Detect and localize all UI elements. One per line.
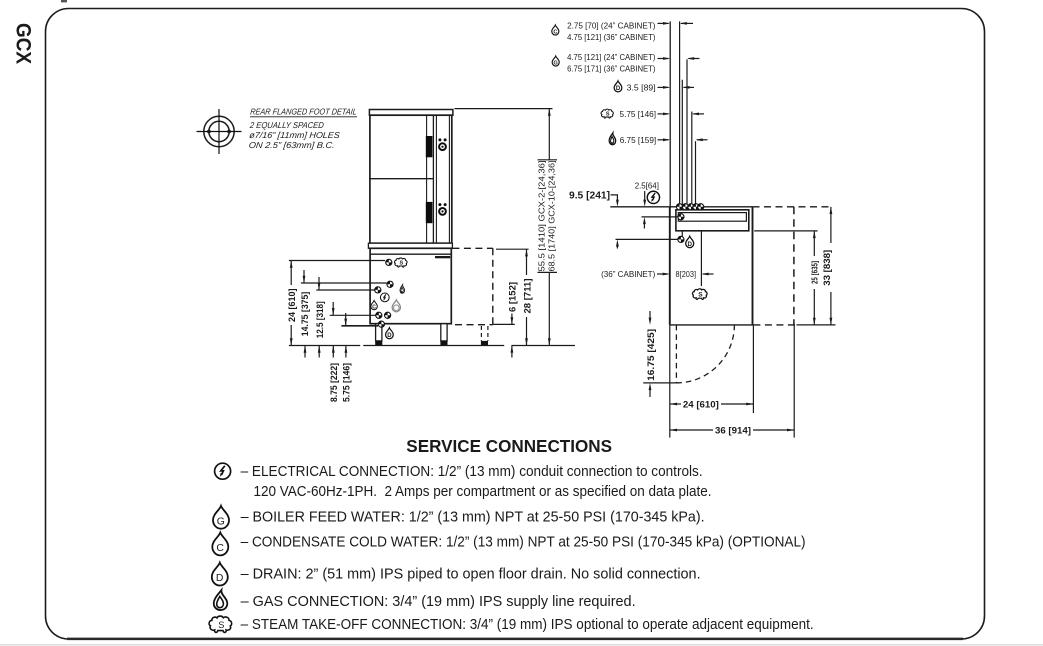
- svg-text:14.75 [375]: 14.75 [375]: [300, 292, 310, 337]
- svg-text:4.75 [121] (24” CABINET): 4.75 [121] (24” CABINET): [567, 52, 656, 62]
- svg-text:– DRAIN: 2” (51 mm) IPS piped: – DRAIN: 2” (51 mm) IPS piped to open fl…: [241, 566, 701, 582]
- svg-text:28 [711]: 28 [711]: [522, 279, 532, 314]
- svg-text:D: D: [216, 573, 224, 584]
- svg-text:6.75 [159]: 6.75 [159]: [620, 135, 657, 145]
- svg-text:– CONDENSATE COLD WATER: 1/2”: – CONDENSATE COLD WATER: 1/2” (13 mm) NP…: [241, 534, 806, 550]
- svg-text:(36” CABINET): (36” CABINET): [601, 269, 655, 279]
- svg-text:S: S: [698, 292, 703, 299]
- svg-text:16.75 [425]: 16.75 [425]: [646, 329, 656, 381]
- svg-text:D: D: [687, 241, 692, 248]
- svg-text:24 [610]: 24 [610]: [287, 288, 297, 322]
- svg-text:25 [635]: 25 [635]: [810, 261, 819, 284]
- svg-text:S: S: [218, 620, 224, 630]
- svg-text:8.75 [222]: 8.75 [222]: [329, 363, 339, 402]
- svg-text:5.75 [146]: 5.75 [146]: [342, 363, 352, 402]
- svg-text:6.75 [171] (36” CABINET): 6.75 [171] (36” CABINET): [567, 64, 656, 74]
- svg-text:55.5 [1410] GCX-2-[24,36]: 55.5 [1410] GCX-2-[24,36]: [537, 161, 547, 272]
- svg-text:G: G: [554, 61, 558, 67]
- svg-text:– STEAM TAKE-OFF CONNECTION: 3: – STEAM TAKE-OFF CONNECTION: 3/4” (19 mm…: [241, 617, 814, 633]
- svg-text:SERVICE CONNECTIONS: SERVICE CONNECTIONS: [406, 436, 612, 456]
- svg-text:C: C: [216, 543, 224, 554]
- svg-text:3.5 [89]: 3.5 [89]: [627, 82, 656, 92]
- svg-text:– GAS CONNECTION: 3/4” (19 mm): – GAS CONNECTION: 3/4” (19 mm) IPS suppl…: [241, 594, 636, 610]
- svg-text:120 VAC-60Hz-1PH. 2 Amps per: 120 VAC-60Hz-1PH. 2 Amps per compartment…: [254, 484, 712, 500]
- svg-text:S: S: [399, 261, 403, 267]
- svg-text:C: C: [372, 304, 376, 310]
- svg-text:24 [610]: 24 [610]: [683, 399, 719, 410]
- svg-text:C: C: [553, 30, 557, 36]
- svg-text:6 [152]: 6 [152]: [508, 282, 518, 312]
- svg-text:S: S: [606, 112, 610, 118]
- svg-text:D: D: [387, 333, 392, 339]
- svg-text:68.5 [1740] GCX-10-[24,36]: 68.5 [1740] GCX-10-[24,36]: [546, 161, 556, 272]
- svg-text:8[203]: 8[203]: [676, 269, 697, 279]
- svg-text:4.75 [121] (36” CABINET): 4.75 [121] (36” CABINET): [567, 32, 656, 42]
- svg-text:REAR FLANGED FOOT DETAIL: REAR FLANGED FOOT DETAIL: [250, 107, 358, 117]
- svg-text:ø7/16” [11mm] HOLES: ø7/16” [11mm] HOLES: [249, 130, 341, 140]
- svg-text:– BOILER FEED WATER: 1/2” (13: – BOILER FEED WATER: 1/2” (13 mm) NPT at…: [241, 509, 705, 525]
- svg-text:33 [838]: 33 [838]: [822, 250, 833, 286]
- svg-text:– ELECTRICAL CONNECTION: 1/2”: – ELECTRICAL CONNECTION: 1/2” (13 mm) co…: [241, 464, 703, 480]
- svg-text:5.75 [146]: 5.75 [146]: [620, 109, 657, 119]
- svg-text:G: G: [217, 516, 225, 527]
- svg-text:2 EQUALLY SPACED: 2 EQUALLY SPACED: [248, 120, 324, 130]
- svg-text:2.75 [70] (24” CABINET): 2.75 [70] (24” CABINET): [567, 20, 656, 30]
- svg-text:GCX: GCX: [12, 23, 35, 64]
- svg-text:9.5 [241]: 9.5 [241]: [569, 190, 610, 202]
- svg-text:D: D: [616, 86, 621, 92]
- svg-text:36 [914]: 36 [914]: [715, 425, 751, 436]
- svg-text:2.5[64]: 2.5[64]: [635, 181, 659, 191]
- svg-text:ON 2.5” [63mm] B.C.: ON 2.5” [63mm] B.C.: [248, 140, 335, 150]
- svg-text:12.5 [318]: 12.5 [318]: [315, 301, 325, 338]
